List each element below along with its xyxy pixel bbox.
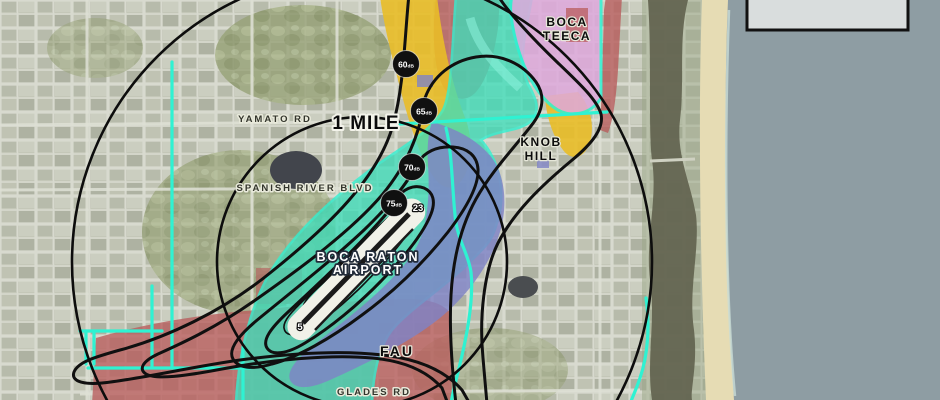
- area-label-knob-hill: HILL: [525, 149, 558, 163]
- noise-marker-75db: 75dB: [381, 190, 408, 217]
- area-label-boca-teeca: TEECA: [543, 29, 591, 43]
- road-label-glades: GLADES RD: [337, 387, 411, 398]
- runway-number-5: 5: [297, 322, 303, 333]
- noise-marker-70db: 70dB: [399, 154, 426, 181]
- lake: [508, 276, 538, 298]
- road-label-yamato: YAMATO RD: [238, 114, 312, 125]
- golf-course: [215, 5, 391, 105]
- bridge: [650, 159, 695, 161]
- map-canvas: YAMATO RD SPANISH RIVER BLVD GLADES RD 1…: [0, 0, 940, 400]
- noise-contour-map: YAMATO RD SPANISH RIVER BLVD GLADES RD 1…: [0, 0, 940, 400]
- runway-number-23: 23: [413, 203, 424, 214]
- area-label-airport: AIRPORT: [333, 263, 403, 277]
- area-label-boca-teeca: BOCA: [546, 15, 587, 29]
- golf-course: [47, 18, 143, 78]
- area-label-airport: BOCA RATON: [316, 250, 419, 264]
- area-label-knob-hill: KNOB: [520, 135, 561, 149]
- scale-label-1-mile: 1 MILE: [332, 113, 399, 134]
- ocean: [726, 0, 940, 400]
- noise-marker-60db: 60dB: [393, 51, 420, 78]
- legend-box: [747, 0, 908, 30]
- noise-marker-65db: 65dB: [411, 98, 438, 125]
- road-label-spanish-river: SPANISH RIVER BLVD: [237, 183, 374, 194]
- area-label-fau: FAU: [380, 343, 414, 359]
